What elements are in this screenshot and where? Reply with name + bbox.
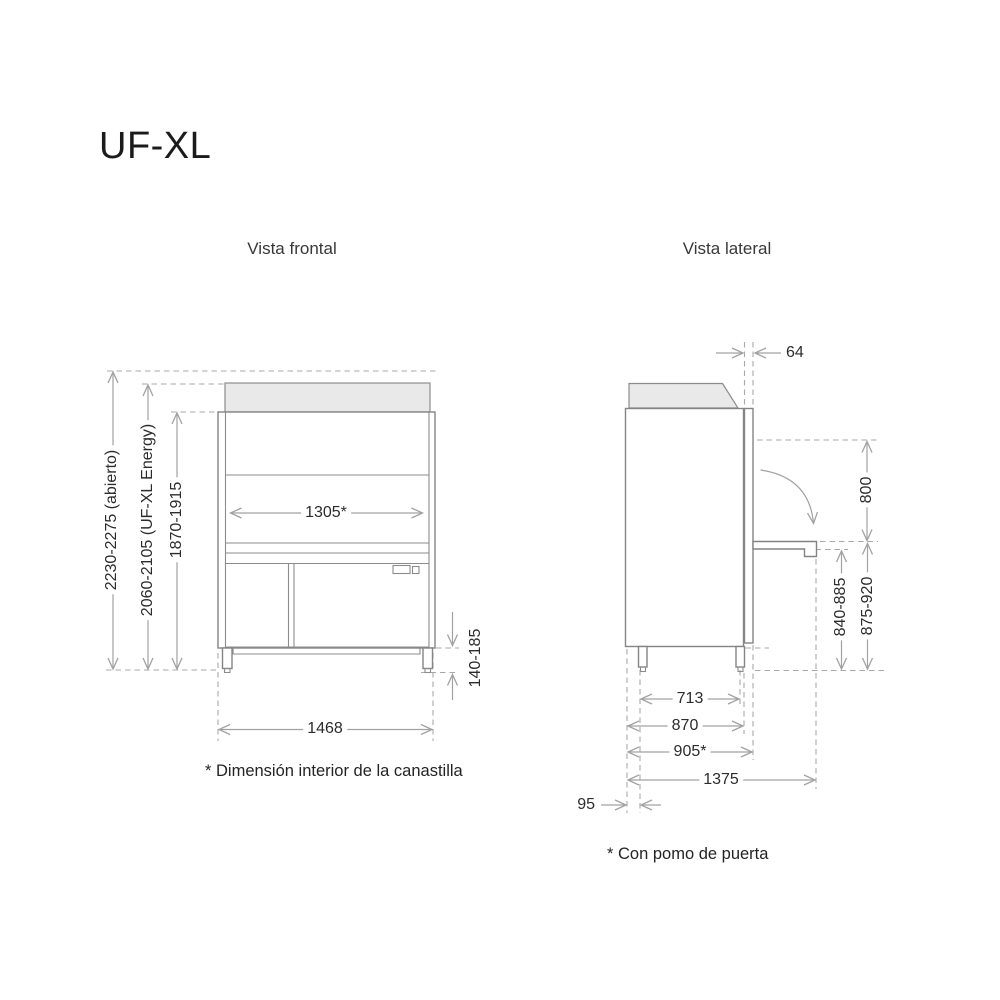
front-view-drawing (106, 371, 459, 741)
dim-depth-door-open: 1375 (699, 771, 743, 789)
dim-handle-height-low: 840-885 (832, 574, 850, 641)
side-machine-body (626, 409, 744, 647)
side-view-title: Vista lateral (683, 239, 772, 259)
side-leg-front (639, 647, 648, 668)
side-hood (629, 384, 738, 409)
front-plinth (233, 648, 420, 654)
front-leg-left (223, 648, 233, 669)
datasheet-page: UF-XL Vista frontal Vista lateral 2230-2… (0, 0, 1000, 1000)
door-swing-arc (761, 470, 814, 523)
front-view-title: Vista frontal (247, 239, 336, 259)
page-title: UF-XL (99, 125, 211, 168)
side-view-note: * Con pomo de puerta (607, 845, 768, 864)
dim-depth-with-knob: 905* (670, 743, 711, 761)
dim-rear-offset: 95 (577, 796, 595, 814)
dim-door-thickness: 64 (786, 344, 804, 362)
dim-door-clearance-height: 800 (858, 473, 876, 508)
front-view-note: * Dimensión interior de la canastilla (205, 762, 463, 781)
front-machine-body (218, 412, 435, 648)
side-door (745, 409, 754, 644)
dim-basket-interior-width: 1305* (301, 504, 351, 522)
dim-handle-height-high: 875-920 (859, 573, 877, 640)
side-door-handle (753, 542, 817, 557)
dim-leg-height: 140-185 (467, 625, 485, 692)
dim-overall-height-open: 2230-2275 (abierto) (103, 446, 121, 595)
dim-body-depth: 870 (668, 717, 703, 735)
dim-leg-spacing-depth: 713 (673, 690, 708, 708)
dim-overall-width: 1468 (303, 720, 347, 738)
front-hood (225, 383, 430, 412)
dim-overall-height-energy: 2060-2105 (UF-XL Energy) (139, 420, 157, 620)
dim-overall-height: 1870-1915 (168, 478, 186, 563)
side-leg-rear (736, 647, 745, 668)
front-leg-right (423, 648, 433, 669)
